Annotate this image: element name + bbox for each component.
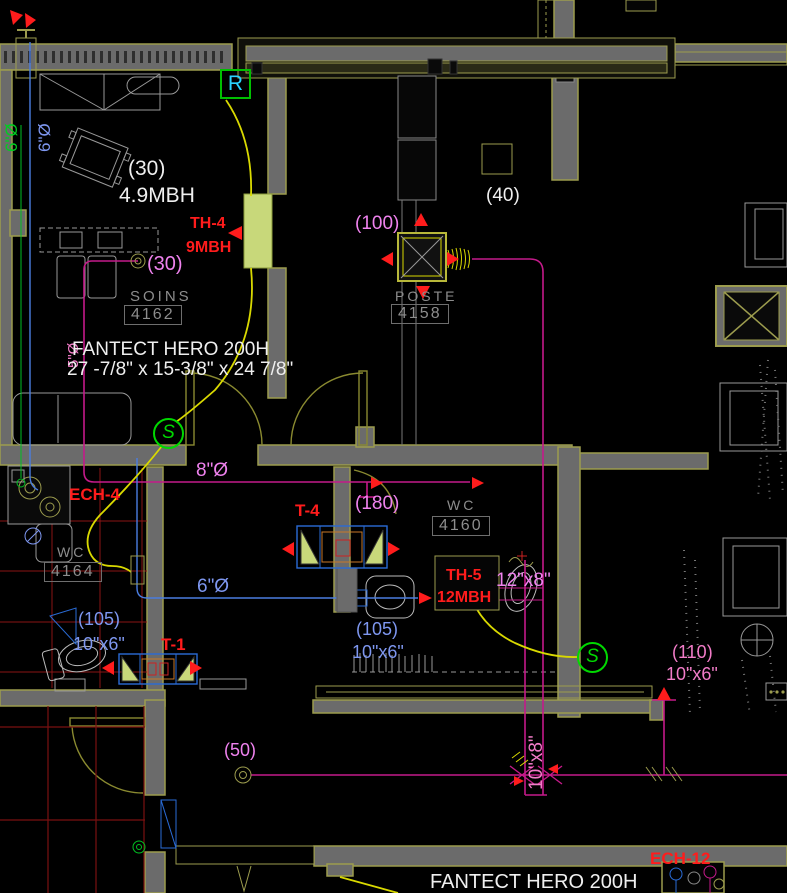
room-number: 4164 xyxy=(44,562,102,582)
airflow-label: (40) xyxy=(486,186,520,205)
equipment-tag: ECH-12 xyxy=(650,850,710,867)
equipment-tag: T-1 xyxy=(161,636,186,653)
room-name: WC xyxy=(447,498,476,512)
airflow-label: (100) xyxy=(355,214,399,233)
room-number: 4160 xyxy=(432,516,490,536)
door-swing-v xyxy=(237,866,251,891)
airflow-label: (105) xyxy=(356,620,398,638)
duct-size-label: 10"x8" xyxy=(527,735,546,790)
shaft-cabinets xyxy=(398,76,436,200)
elevator-shaft xyxy=(716,286,787,346)
window-sill xyxy=(176,846,314,864)
capacity-label: 9MBH xyxy=(186,240,231,256)
column-box xyxy=(482,144,512,174)
equipment-note: FANTECT HERO 200H xyxy=(72,340,269,359)
shelf xyxy=(316,686,652,698)
airflow-label: (50) xyxy=(224,741,256,759)
capacity-label: 4.9MBH xyxy=(119,185,195,206)
airflow-label: (180) xyxy=(355,494,399,513)
duct-blue xyxy=(30,42,418,598)
supply-diffuser xyxy=(398,233,470,281)
room-number: 4158 xyxy=(391,304,449,324)
capacity-label: 12MBH xyxy=(437,590,491,606)
duct-size-label: 6"Ø xyxy=(3,123,20,152)
equipment-note: FANTECT HERO 200H xyxy=(430,872,637,892)
room-number: 4162 xyxy=(124,305,182,325)
duct-size-label: 10"x6" xyxy=(352,643,404,661)
airflow-label: (30) xyxy=(128,158,165,179)
duct-size-label: 10"x6" xyxy=(666,665,718,683)
device-dots xyxy=(769,690,784,693)
blue-panel xyxy=(161,800,176,848)
equipment-tag: ECH-4 xyxy=(69,486,120,503)
equipment-note: 27 -7/8" x 15-3/8" x 24 7/8" xyxy=(67,360,293,379)
airflow-label: (105) xyxy=(78,610,120,628)
equipment-tag: T-4 xyxy=(295,502,320,519)
wall-layer xyxy=(0,0,787,893)
equipment-tag: TH-4 xyxy=(190,216,226,232)
airflow-label: (110) xyxy=(672,643,713,661)
duct-size-label: 8"Ø xyxy=(196,461,228,480)
duct-size-label: 6"Ø xyxy=(36,123,53,152)
room-name: WC xyxy=(57,545,86,559)
equipment-tag: TH-5 xyxy=(446,568,482,584)
cad-floorplan-viewport: R S S 6"Ø 6"Ø (30) 4.9MBH TH-4 9MBH (30)… xyxy=(0,0,787,893)
room-name: POSTE xyxy=(395,289,457,303)
room-name: SOINS xyxy=(130,289,192,304)
return-air-marker: R xyxy=(220,69,251,99)
airflow-label: (30) xyxy=(147,254,183,274)
baseboard-heater xyxy=(244,194,272,268)
duct-size-label: 10"x6" xyxy=(73,635,125,653)
floorplan-linework xyxy=(0,0,787,893)
phi-symbol xyxy=(25,528,41,544)
supply-air-marker: S xyxy=(577,642,608,673)
wall-nib xyxy=(626,0,656,11)
supply-air-marker: S xyxy=(153,418,184,449)
duct-size-label: 6"Ø xyxy=(197,577,229,596)
duct-size-label: 12"x8" xyxy=(496,571,551,590)
